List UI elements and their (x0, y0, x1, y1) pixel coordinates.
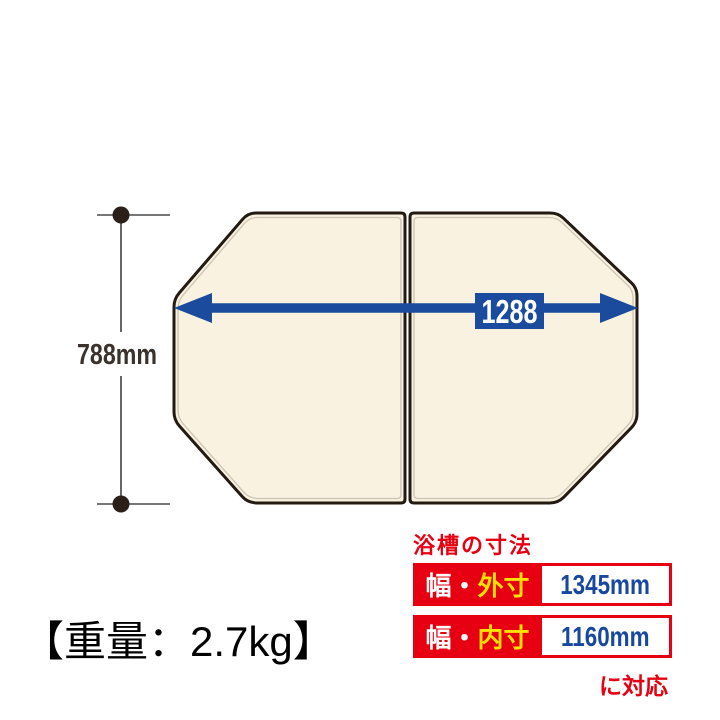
spec-label-highlight: 内寸 (478, 618, 530, 655)
spec-row-inner-width: 幅・内寸 1160mm (413, 615, 672, 658)
spec-compatibility-note: に対応 (413, 667, 672, 701)
height-dimension-dot-top (113, 207, 130, 224)
spec-row-inner-width-label: 幅・内寸 (413, 615, 542, 658)
spec-row-inner-width-valuebox: 1160mm (542, 618, 669, 655)
spec-label-highlight: 外寸 (478, 566, 530, 603)
spec-label-prefix: 幅・ (425, 566, 477, 603)
lid-right-panel (410, 213, 637, 503)
height-dimension: 788mm (77, 207, 170, 513)
spec-row-outer-width-value: 1345mm (561, 569, 651, 601)
spec-row-inner-width-value: 1160mm (561, 621, 649, 653)
lid-left-panel (174, 213, 405, 503)
spec-table-title: 浴槽の寸法 (413, 531, 672, 560)
width-dimension-value: 1288 (482, 293, 538, 330)
spec-row-outer-width-label: 幅・外寸 (413, 563, 542, 606)
weight-caption: 【重量：2.7kg】 (22, 608, 335, 669)
spec-label-prefix: 幅・ (425, 618, 477, 655)
spec-row-outer-width-valuebox: 1345mm (542, 566, 669, 603)
spec-row-outer-width: 幅・外寸 1345mm (413, 563, 672, 606)
height-dimension-dot-bottom (113, 496, 130, 513)
bathtub-spec-table: 浴槽の寸法 幅・外寸 1345mm 幅・内寸 1160mm に対応 (413, 531, 672, 701)
height-dimension-label: 788mm (77, 339, 157, 371)
product-dimension-diagram: 788mm 1288 【重量：2.7kg】 浴槽の寸法 幅・外寸 1345mm … (0, 0, 720, 720)
